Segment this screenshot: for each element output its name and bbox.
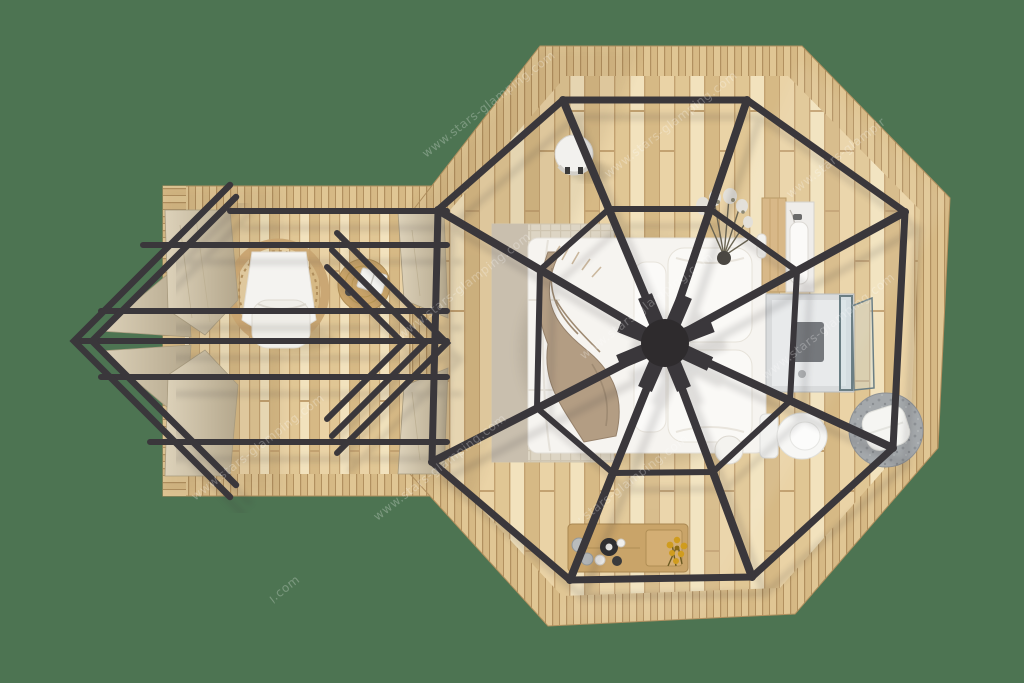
watermark-text: www.stars-glamping.com (710, 633, 848, 683)
render-canvas: www.stars-glamping.comwww.stars-glamping… (0, 0, 1024, 683)
faucet (793, 214, 802, 220)
watermark-text: www.stars-glamping.com (0, 552, 121, 664)
watermark-text: www.stars-glamping.com (808, 0, 946, 19)
watermark-text: www.stars-glamping.com (917, 472, 1024, 584)
watermark-text: www.stars-glamping.com (941, 290, 1024, 402)
watermark-text: www.stars-glamping.com (55, 8, 193, 120)
glamping-tent-top-view: www.stars-glamping.comwww.stars-glamping… (0, 0, 1024, 683)
watermark-text: www.stars-glamping.com (237, 28, 375, 140)
watermark-text: www.stars-glamping.com (164, 572, 302, 683)
watermark-text: www.stars-glamping.com (0, 0, 12, 100)
frame-hub (641, 319, 689, 367)
watermark-text: www.stars-glamping.com (346, 592, 484, 683)
watermark-text: www.stars-glamping.com (966, 109, 1024, 221)
watermark-text: www.stars-glamping.com (892, 653, 1024, 683)
flower-pot (717, 251, 731, 265)
watermark-text: www.stars-glamping.com (990, 0, 1024, 40)
